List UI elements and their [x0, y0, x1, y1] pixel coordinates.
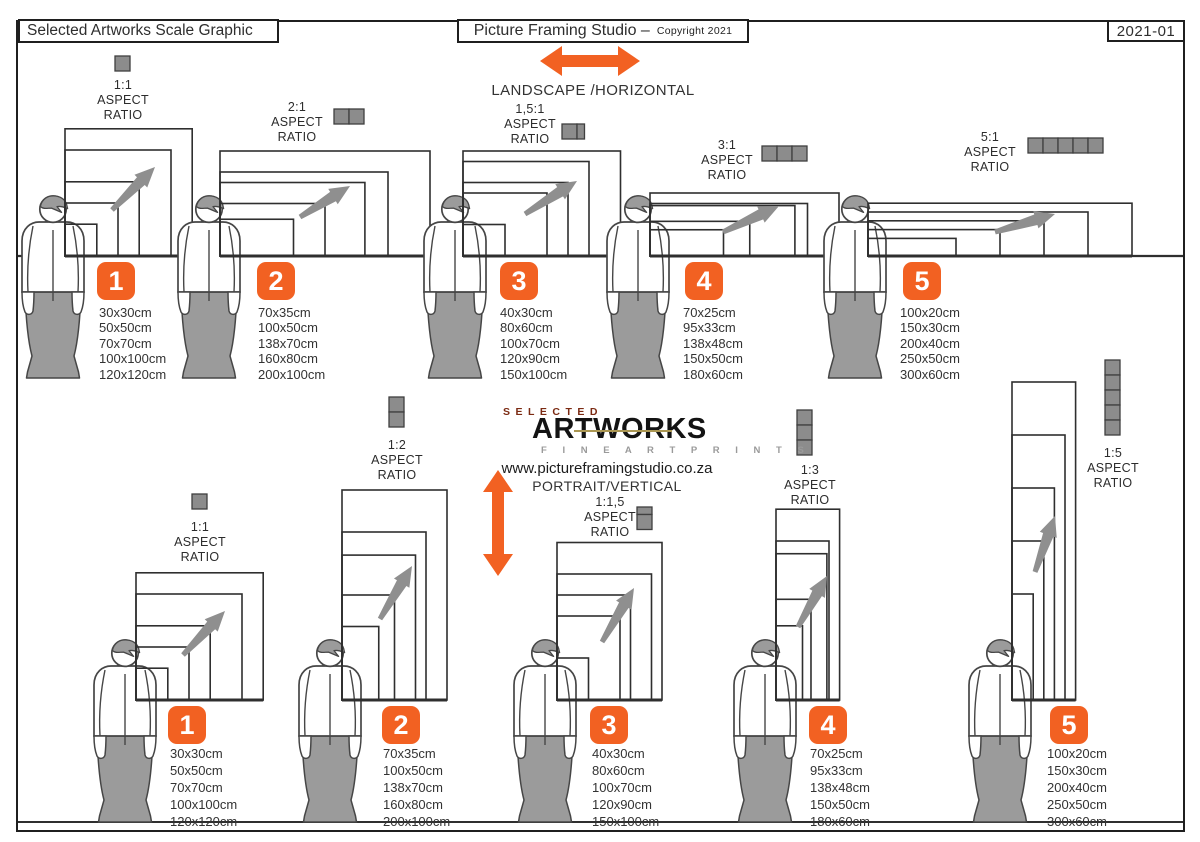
- landscape-group-3-aspect-word: ASPECT: [465, 117, 595, 131]
- portrait-group-1-1-square-vertical-icon: [192, 494, 207, 509]
- page-title: Selected Artworks Scale Graphic: [18, 19, 279, 43]
- landscape-group-4-size-item: 95x33cm: [683, 320, 736, 335]
- landscape-group-1-1-square-horizontal-icon: [115, 56, 130, 71]
- landscape-group-3-size-item: 100x70cm: [500, 336, 560, 351]
- landscape-group-3-size-item: 80x60cm: [500, 320, 553, 335]
- landscape-group-1-ratio-value: 1:1: [58, 78, 188, 92]
- orientation-label-landscape: LANDSCAPE /HORIZONTAL: [443, 82, 743, 99]
- portrait-group-3-size-item: 80x60cm: [592, 763, 645, 778]
- portrait-group-2-size-item: 70x35cm: [383, 746, 436, 761]
- edition-code-text: 2021-01: [1117, 23, 1176, 40]
- portrait-group-4-size-item: 95x33cm: [810, 763, 863, 778]
- portrait-group-3-ratio-word: RATIO: [545, 525, 675, 539]
- scale-arrow-icon: [524, 181, 577, 216]
- landscape-group-1-ratio-word: RATIO: [58, 108, 188, 122]
- landscape-group-4-person-figure: [607, 196, 669, 378]
- portrait-group-4-size-item: 150x50cm: [810, 797, 870, 812]
- portrait-group-5-size-item: 300x60cm: [1047, 814, 1107, 829]
- landscape-group-2-size-item: 160x80cm: [258, 351, 318, 366]
- landscape-group-5-ratio-value: 5:1: [925, 130, 1055, 144]
- portrait-group-5-size-item: 150x30cm: [1047, 763, 1107, 778]
- portrait-group-1-size-item: 100x100cm: [170, 797, 237, 812]
- landscape-arrow-icon: [540, 46, 640, 76]
- frame-rect: [868, 212, 1088, 256]
- logo-tagline: F I N E A R T P R I N T S: [541, 445, 810, 456]
- portrait-group-4-aspect-word: ASPECT: [745, 478, 875, 492]
- portrait-group-2-size-item: 100x50cm: [383, 763, 443, 778]
- landscape-group-5-size-item: 250x50cm: [900, 351, 960, 366]
- portrait-group-5-ratio-word: RATIO: [1048, 476, 1178, 490]
- portrait-group-5-size-item: 100x20cm: [1047, 746, 1107, 761]
- landscape-group-4-size-item: 150x50cm: [683, 351, 743, 366]
- portrait-group-2-number-badge: 2: [382, 706, 420, 744]
- landscape-group-4-size-item: 180x60cm: [683, 367, 743, 382]
- landscape-group-4-aspect-word: ASPECT: [662, 153, 792, 167]
- portrait-group-1-size-item: 120x120cm: [170, 814, 237, 829]
- portrait-group-2-person-figure: [299, 640, 361, 822]
- landscape-group-1-size-item: 100x100cm: [99, 351, 166, 366]
- portrait-group-3-aspect-word: ASPECT: [545, 510, 675, 524]
- portrait-group-3-number-badge: 3: [590, 706, 628, 744]
- portrait-group-4-size-item: 138x48cm: [810, 780, 870, 795]
- portrait-group-5-number-badge: 5: [1050, 706, 1088, 744]
- edition-code: 2021-01: [1107, 20, 1185, 42]
- portrait-group-2-ratio-value: 1:2: [332, 438, 462, 452]
- portrait-group-5-aspect-word: ASPECT: [1048, 461, 1178, 475]
- portrait-group-4-number-badge: 4: [809, 706, 847, 744]
- landscape-group-5-number-badge: 5: [903, 262, 941, 300]
- landscape-group-5-ratio-word: RATIO: [925, 160, 1055, 174]
- landscape-group-2-ratio-word: RATIO: [232, 130, 362, 144]
- landscape-group-2-person-figure: [178, 196, 240, 378]
- landscape-group-1-person-figure: [22, 196, 84, 378]
- landscape-group-2-aspect-word: ASPECT: [232, 115, 362, 129]
- landscape-group-1-aspect-word: ASPECT: [58, 93, 188, 107]
- page-title-text: Selected Artworks Scale Graphic: [27, 22, 253, 40]
- scale-arrow-icon: [181, 611, 225, 657]
- portrait-group-5-size-item: 200x40cm: [1047, 780, 1107, 795]
- portrait-group-4-person-figure: [734, 640, 796, 822]
- landscape-group-2-size-item: 70x35cm: [258, 305, 311, 320]
- landscape-group-5-person-figure: [824, 196, 886, 378]
- landscape-group-5-size-item: 100x20cm: [900, 305, 960, 320]
- landscape-group-4-ratio-value: 3:1: [662, 138, 792, 152]
- landscape-group-4-size-item: 70x25cm: [683, 305, 736, 320]
- landscape-group-3-size-item: 150x100cm: [500, 367, 567, 382]
- portrait-group-2-size-item: 160x80cm: [383, 797, 443, 812]
- portrait-group-2-2-squares-vertical-icon: [389, 397, 404, 427]
- portrait-group-1-ratio-word: RATIO: [135, 550, 265, 564]
- landscape-group-3-ratio-word: RATIO: [465, 132, 595, 146]
- landscape-group-1-size-item: 70x70cm: [99, 336, 152, 351]
- portrait-group-5-person-figure: [969, 640, 1031, 822]
- landscape-group-4-size-item: 138x48cm: [683, 336, 743, 351]
- landscape-group-2-size-item: 138x70cm: [258, 336, 318, 351]
- scale-arrow-icon: [994, 211, 1055, 234]
- landscape-group-1-size-item: 30x30cm: [99, 305, 152, 320]
- portrait-group-2-aspect-word: ASPECT: [332, 453, 462, 467]
- portrait-group-1-ratio-value: 1:1: [135, 520, 265, 534]
- landscape-group-1-number-badge: 1: [97, 262, 135, 300]
- landscape-group-2-ratio-value: 2:1: [232, 100, 362, 114]
- landscape-group-5-size-item: 150x30cm: [900, 320, 960, 335]
- landscape-group-2-size-item: 100x50cm: [258, 320, 318, 335]
- copyright-text: Copyright 2021: [657, 25, 732, 37]
- landscape-group-3-size-item: 40x30cm: [500, 305, 553, 320]
- portrait-group-3-size-item: 120x90cm: [592, 797, 652, 812]
- portrait-group-2-size-item: 138x70cm: [383, 780, 443, 795]
- portrait-group-3-size-item: 150x100cm: [592, 814, 659, 829]
- portrait-group-1-size-item: 70x70cm: [170, 780, 223, 795]
- orientation-label-portrait: PORTRAIT/VERTICAL: [457, 478, 757, 494]
- portrait-group-3-size-item: 100x70cm: [592, 780, 652, 795]
- landscape-group-1-size-item: 50x50cm: [99, 320, 152, 335]
- landscape-group-4-ratio-word: RATIO: [662, 168, 792, 182]
- landscape-group-5-aspect-word: ASPECT: [925, 145, 1055, 159]
- portrait-group-4-size-item: 180x60cm: [810, 814, 870, 829]
- portrait-group-5-size-item: 250x50cm: [1047, 797, 1107, 812]
- poster-canvas: Selected Artworks Scale Graphic Picture …: [0, 0, 1200, 842]
- landscape-group-2-size-item: 200x100cm: [258, 367, 325, 382]
- frame-rect: [868, 230, 1000, 256]
- portrait-group-1-size-item: 30x30cm: [170, 746, 223, 761]
- studio-title: Picture Framing Studio – Copyright 2021: [457, 19, 749, 43]
- scale-arrow-icon: [1033, 516, 1057, 573]
- studio-title-text: Picture Framing Studio –: [474, 22, 650, 40]
- landscape-group-3-size-item: 120x90cm: [500, 351, 560, 366]
- portrait-group-4-ratio-word: RATIO: [745, 493, 875, 507]
- landscape-group-5-size-item: 200x40cm: [900, 336, 960, 351]
- portrait-group-1-number-badge: 1: [168, 706, 206, 744]
- portrait-group-4-ratio-value: 1:3: [745, 463, 875, 477]
- landscape-group-5-size-item: 300x60cm: [900, 367, 960, 382]
- portrait-group-1-person-figure: [94, 640, 156, 822]
- landscape-group-3-person-figure: [424, 196, 486, 378]
- logo-strike-line: [574, 430, 672, 432]
- logo-website: www.pictureframingstudio.co.za: [457, 460, 757, 477]
- portrait-group-3-ratio-value: 1:1,5: [545, 495, 675, 509]
- portrait-group-1-aspect-word: ASPECT: [135, 535, 265, 549]
- portrait-group-2-size-item: 200x100cm: [383, 814, 450, 829]
- landscape-group-1-size-item: 120x120cm: [99, 367, 166, 382]
- portrait-group-1-size-item: 50x50cm: [170, 763, 223, 778]
- portrait-group-3-size-item: 40x30cm: [592, 746, 645, 761]
- landscape-group-4-number-badge: 4: [685, 262, 723, 300]
- landscape-group-3-ratio-value: 1,5:1: [465, 102, 595, 116]
- portrait-group-3-person-figure: [514, 640, 576, 822]
- portrait-group-5-ratio-value: 1:5: [1048, 446, 1178, 460]
- portrait-group-5-5-squares-vertical-icon: [1105, 360, 1120, 435]
- portrait-group-2-ratio-word: RATIO: [332, 468, 462, 482]
- landscape-group-3-number-badge: 3: [500, 262, 538, 300]
- portrait-group-4-size-item: 70x25cm: [810, 746, 863, 761]
- landscape-group-2-number-badge: 2: [257, 262, 295, 300]
- scale-arrow-icon: [110, 167, 155, 212]
